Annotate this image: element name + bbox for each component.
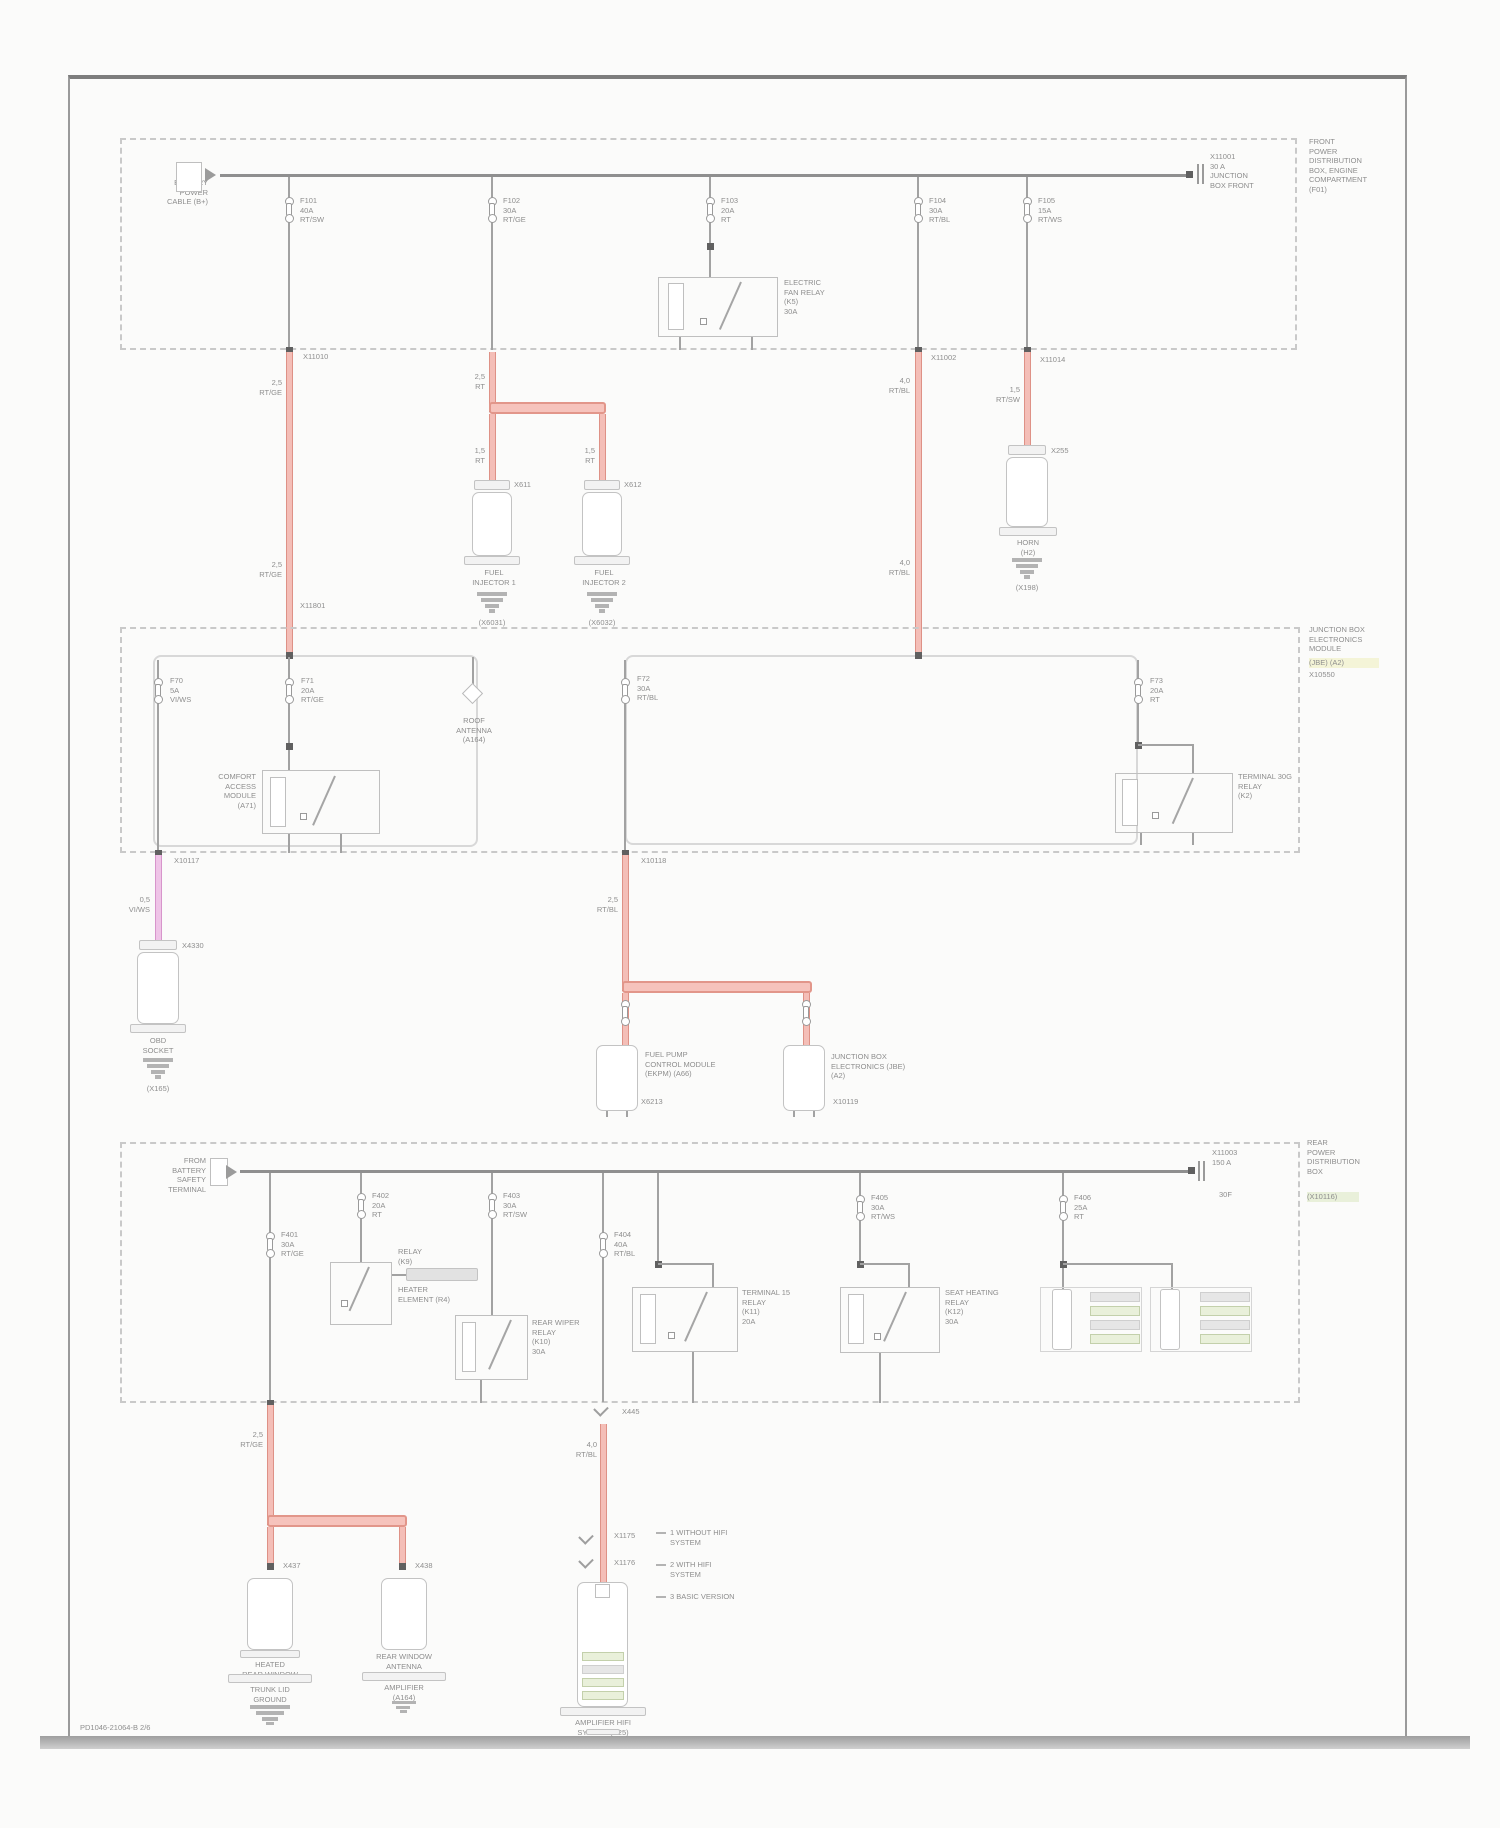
component-horn xyxy=(1006,457,1048,527)
red-wire xyxy=(399,1527,406,1565)
connector-label: X6213 xyxy=(641,1097,683,1107)
connector-label: X255 xyxy=(1051,446,1087,456)
element-row xyxy=(1090,1292,1140,1302)
ground-icon xyxy=(155,1075,161,1079)
component-label: HORN (H2) xyxy=(1001,538,1055,557)
wire xyxy=(626,1111,628,1117)
ground-icon xyxy=(143,1058,173,1062)
component-base xyxy=(130,1024,186,1033)
fuse-label: F103 20A RT xyxy=(721,196,776,225)
relay-coil-icon xyxy=(1122,779,1138,826)
ground-icon xyxy=(591,598,613,602)
box1-bus xyxy=(220,174,1192,177)
relay-coil-icon xyxy=(848,1294,864,1344)
connector-tick xyxy=(1197,164,1199,184)
junction-dot xyxy=(267,1563,274,1570)
red-wire xyxy=(489,414,496,480)
wire-color-label: 4,0 RT/BL xyxy=(565,1440,597,1459)
footer-code: PD1046-21064-B 2/6 xyxy=(80,1723,200,1733)
ground-icon xyxy=(1016,564,1038,568)
component-row xyxy=(582,1691,624,1700)
wire xyxy=(602,1173,604,1402)
ground-icon xyxy=(256,1711,284,1715)
red-feed-pipe xyxy=(267,1515,407,1527)
ground-label: (X198) xyxy=(997,583,1057,593)
component-rear-antenna xyxy=(381,1578,427,1650)
legend-entry: 3 BASIC VERSION xyxy=(670,1592,830,1602)
component-pin xyxy=(595,1584,610,1598)
relay-label: COMFORT ACCESS MODULE (A71) xyxy=(194,772,256,810)
wire xyxy=(606,1111,608,1117)
fuse-icon xyxy=(1023,197,1031,223)
fuse-label: F405 30A RT/WS xyxy=(871,1193,926,1222)
fuse-icon xyxy=(802,1000,810,1026)
legend-tick xyxy=(656,1564,666,1566)
wire xyxy=(1171,1265,1173,1289)
fuse-label: F406 25A RT xyxy=(1074,1193,1122,1222)
ground-icon xyxy=(147,1064,169,1068)
junction-dot xyxy=(915,652,922,659)
fuse-label: F105 15A RT/WS xyxy=(1038,196,1093,225)
ground-icon xyxy=(396,1706,410,1709)
wire-color-label: 1,5 RT/SW xyxy=(988,385,1020,404)
wire xyxy=(712,1265,714,1287)
wire xyxy=(1192,746,1194,773)
box2-title-highlight: (JBE) (A2) xyxy=(1309,658,1379,668)
component-row xyxy=(582,1652,624,1661)
pink-wire xyxy=(155,855,162,940)
fuse-icon xyxy=(285,197,293,223)
wire xyxy=(1062,1173,1064,1289)
wire xyxy=(692,1352,694,1403)
connector-bar xyxy=(139,940,177,950)
wire-color-label: 2,5 RT/GE xyxy=(231,1430,263,1449)
connector-label: X612 xyxy=(624,480,658,490)
junction-dot xyxy=(1186,171,1193,178)
connector-bar xyxy=(584,480,620,490)
fuse-label: F73 20A RT xyxy=(1150,676,1198,705)
fuse-icon xyxy=(621,1000,629,1026)
red-wire xyxy=(599,414,606,480)
fuse-label: F101 40A RT/SW xyxy=(300,196,355,225)
component-label: OBD SOCKET xyxy=(131,1036,185,1055)
wire xyxy=(709,177,711,277)
fuse-label: F402 20A RT xyxy=(372,1191,427,1220)
wiring-diagram-page: PD1046-21064-B 2/6 FRONT POWER DISTRIBUT… xyxy=(0,0,1500,1828)
wire xyxy=(480,1380,482,1403)
fuse-icon xyxy=(599,1232,607,1258)
connector-label: X4330 xyxy=(182,941,222,951)
relay-coil-icon xyxy=(270,777,286,827)
wire-color-label: 2,5 RT/BL xyxy=(586,895,618,914)
fuse-icon xyxy=(154,678,162,704)
connector-label: X437 xyxy=(283,1561,333,1571)
box3-terminal-label: X11003 150 A xyxy=(1212,1148,1292,1167)
wire xyxy=(1063,1263,1173,1265)
component-ekpm xyxy=(596,1045,638,1111)
relay-label: ELECTRIC FAN RELAY (K5) 30A xyxy=(784,278,879,316)
connector-label: X11014 xyxy=(1040,355,1095,365)
fuse-icon xyxy=(285,678,293,704)
component-tail xyxy=(586,1729,620,1735)
wire xyxy=(269,1173,271,1403)
connector-label: X11801 xyxy=(300,601,355,611)
wire xyxy=(392,1274,406,1276)
relay-pin xyxy=(700,318,707,325)
element-row xyxy=(1090,1334,1140,1344)
ground-icon xyxy=(262,1717,278,1721)
wire-color-label: 2,5 RT/GE xyxy=(250,378,282,397)
component-base xyxy=(464,556,520,565)
element-row xyxy=(1200,1292,1250,1302)
entry-arrow-icon xyxy=(205,168,216,182)
wire xyxy=(340,834,342,853)
relay-label: TERMINAL 30G RELAY (K2) xyxy=(1238,772,1318,801)
component-label: FUEL PUMP CONTROL MODULE (EKPM) (A66) xyxy=(645,1050,760,1079)
relay-pin xyxy=(668,1332,675,1339)
fuse-label: F70 5A VI/WS xyxy=(170,676,225,705)
fuse-icon xyxy=(488,1193,496,1219)
connector-label: X10117 xyxy=(174,856,229,866)
ground-icon xyxy=(151,1070,165,1074)
fuse-icon xyxy=(1059,1195,1067,1221)
component-label: FUEL INJECTOR 2 xyxy=(576,568,632,587)
ground-icon xyxy=(400,1710,407,1713)
wire xyxy=(908,1265,910,1287)
red-wire xyxy=(489,352,496,408)
component-row xyxy=(582,1678,624,1687)
connector-label: X10118 xyxy=(641,856,696,866)
fuse-label: F71 20A RT/GE xyxy=(301,676,356,705)
component-base-wide xyxy=(560,1707,646,1716)
wire xyxy=(657,1173,659,1265)
connector-label: X1176 xyxy=(614,1558,664,1568)
component-heated-rear-window xyxy=(247,1578,293,1650)
fuse-label: F102 30A RT/GE xyxy=(503,196,558,225)
junction-dot xyxy=(286,743,293,750)
junction-dot xyxy=(707,243,714,250)
wire xyxy=(472,657,474,685)
wire xyxy=(288,834,290,853)
wire xyxy=(1192,833,1194,845)
red-feed-pipe xyxy=(489,402,606,414)
connector-label: X611 xyxy=(514,480,548,490)
connector-label: X10119 xyxy=(833,1097,875,1107)
box3-terminal-label2: 30F xyxy=(1219,1190,1269,1200)
relay-coil-icon xyxy=(462,1322,476,1372)
page-bottom-band xyxy=(40,1736,1470,1749)
red-wire xyxy=(915,352,922,655)
fuse-icon xyxy=(357,1193,365,1219)
ground-icon xyxy=(595,604,609,608)
ground-icon xyxy=(489,609,495,613)
element-label: HEATER ELEMENT (R4) xyxy=(398,1285,478,1304)
legend-tick xyxy=(656,1596,666,1598)
element-bar xyxy=(406,1268,478,1281)
fuse-icon xyxy=(856,1195,864,1221)
junction-dot xyxy=(399,1563,406,1570)
connector-tick xyxy=(1203,1161,1205,1181)
box3-entry-label: FROM BATTERY SAFETY TERMINAL xyxy=(136,1156,206,1194)
component-row xyxy=(582,1665,624,1674)
connector-bar xyxy=(474,480,510,490)
element-row xyxy=(1200,1320,1250,1330)
ground-label: (X165) xyxy=(128,1084,188,1094)
connector-label: X445 xyxy=(622,1407,672,1417)
red-wire xyxy=(600,1424,607,1582)
fuse-icon xyxy=(706,197,714,223)
ground-icon xyxy=(599,609,605,613)
wire xyxy=(1138,744,1194,746)
connector-label: X11002 xyxy=(931,353,986,363)
relay-label: TERMINAL 15 RELAY (K11) 20A xyxy=(742,1288,830,1326)
pin-housing xyxy=(1160,1289,1180,1350)
fuse-icon xyxy=(266,1232,274,1258)
junction-dot xyxy=(1188,1167,1195,1174)
element-row xyxy=(1200,1334,1250,1344)
ground-icon xyxy=(392,1701,416,1704)
box2-right-subbox xyxy=(625,655,1138,845)
box3-outline xyxy=(120,1142,1300,1403)
red-wire xyxy=(1024,352,1031,445)
box3-bus xyxy=(240,1170,1192,1173)
ground-icon xyxy=(1024,575,1030,579)
ground-icon xyxy=(266,1722,274,1725)
component-base-wide xyxy=(228,1674,312,1683)
wire-color-label: 1,5 RT xyxy=(563,446,595,465)
wire-color-label: 1,5 RT xyxy=(453,446,485,465)
ground-icon xyxy=(485,604,499,608)
component-base xyxy=(999,527,1057,536)
ground-icon xyxy=(477,592,507,596)
component-label: FUEL INJECTOR 1 xyxy=(466,568,522,587)
wire-color-label: 2,5 RT/GE xyxy=(250,560,282,579)
fuse-label: F404 40A RT/BL xyxy=(614,1230,669,1259)
red-feed-pipe xyxy=(622,981,812,993)
box3-title: REAR POWER DISTRIBUTION BOX xyxy=(1307,1138,1399,1176)
component-label2: TRUNK LID GROUND xyxy=(232,1685,308,1704)
wire xyxy=(658,1263,714,1265)
relay-box xyxy=(330,1262,392,1325)
fuse-label: F401 30A RT/GE xyxy=(281,1230,336,1259)
relay-label: REAR WIPER RELAY (K10) 30A xyxy=(532,1318,620,1356)
relay-label: SEAT HEATING RELAY (K12) 30A xyxy=(945,1288,1033,1326)
box3-title-highlight: (X10116) xyxy=(1307,1192,1359,1202)
red-wire xyxy=(622,855,629,986)
box1-terminal-label: X11001 30 A JUNCTION BOX FRONT xyxy=(1210,152,1295,190)
wire xyxy=(679,337,681,350)
connector-label: X11010 xyxy=(303,352,358,362)
legend-tick xyxy=(656,1532,666,1534)
relay-coil-icon xyxy=(668,283,684,330)
wire xyxy=(751,337,753,350)
component-base xyxy=(240,1650,300,1658)
ground-icon xyxy=(1012,558,1042,562)
wire xyxy=(860,1263,910,1265)
connector-tick xyxy=(1202,164,1204,184)
antenna-label: ROOF ANTENNA (A164) xyxy=(443,716,505,745)
box2-title: JUNCTION BOX ELECTRONICS MODULE xyxy=(1309,625,1401,654)
fuse-icon xyxy=(488,197,496,223)
red-wire xyxy=(267,1405,274,1521)
legend-entry: 1 WITHOUT HIFI SYSTEM xyxy=(670,1528,830,1547)
wire-color-label: 4,0 RT/BL xyxy=(878,376,910,395)
component-fuel-injector-2 xyxy=(582,492,622,556)
fuse-icon xyxy=(914,197,922,223)
fuse-icon xyxy=(1134,678,1142,704)
relay-label: RELAY (K9) xyxy=(398,1247,458,1266)
connector-tick xyxy=(1198,1161,1200,1181)
wire xyxy=(288,657,290,770)
component-obd-socket xyxy=(137,952,179,1024)
connector-bar xyxy=(1008,445,1046,455)
component-fuel-injector-1 xyxy=(472,492,512,556)
relay-pin xyxy=(1152,812,1159,819)
wire xyxy=(793,1111,795,1117)
ground-icon xyxy=(481,598,503,602)
relay-pin xyxy=(341,1300,348,1307)
component-label2: AMPLIFIER (A164) xyxy=(366,1683,442,1702)
red-wire xyxy=(286,352,293,655)
wire-color-label: 4,0 RT/BL xyxy=(878,558,910,577)
pin-housing xyxy=(1052,1289,1072,1350)
legend-entry: 2 WITH HIFI SYSTEM xyxy=(670,1560,830,1579)
component-base-wide xyxy=(362,1672,446,1681)
red-wire xyxy=(267,1527,274,1565)
box2-title-sub: X10550 xyxy=(1309,670,1379,680)
box1-title: FRONT POWER DISTRIBUTION BOX, ENGINE COM… xyxy=(1309,137,1401,194)
wire-color-label: 2,5 RT xyxy=(453,372,485,391)
ground-icon xyxy=(250,1705,290,1709)
component-base xyxy=(574,556,630,565)
wire xyxy=(1140,833,1142,845)
component-label: JUNCTION BOX ELECTRONICS (JBE) (A2) xyxy=(831,1052,946,1081)
relay-pin xyxy=(300,813,307,820)
fuse-label: F72 30A RT/BL xyxy=(637,674,692,703)
component-jbe xyxy=(783,1045,825,1111)
entry-arrow-icon xyxy=(226,1165,237,1179)
wire xyxy=(879,1353,881,1403)
component-hifi-amplifier xyxy=(577,1582,628,1707)
component-label: REAR WINDOW ANTENNA xyxy=(358,1652,450,1671)
ground-icon xyxy=(1020,570,1034,574)
battery-terminal-icon xyxy=(176,162,202,192)
fuse-label: F104 30A RT/BL xyxy=(929,196,984,225)
element-row xyxy=(1090,1320,1140,1330)
connector-label: X438 xyxy=(415,1561,465,1571)
element-row xyxy=(1200,1306,1250,1316)
fuse-label: F403 30A RT/SW xyxy=(503,1191,558,1220)
wire xyxy=(813,1111,815,1117)
fuse-icon xyxy=(621,678,629,704)
relay-coil-icon xyxy=(640,1294,656,1344)
wire-color-label: 0,5 VI/WS xyxy=(118,895,150,914)
relay-pin xyxy=(874,1333,881,1340)
element-row xyxy=(1090,1306,1140,1316)
ground-icon xyxy=(587,592,617,596)
